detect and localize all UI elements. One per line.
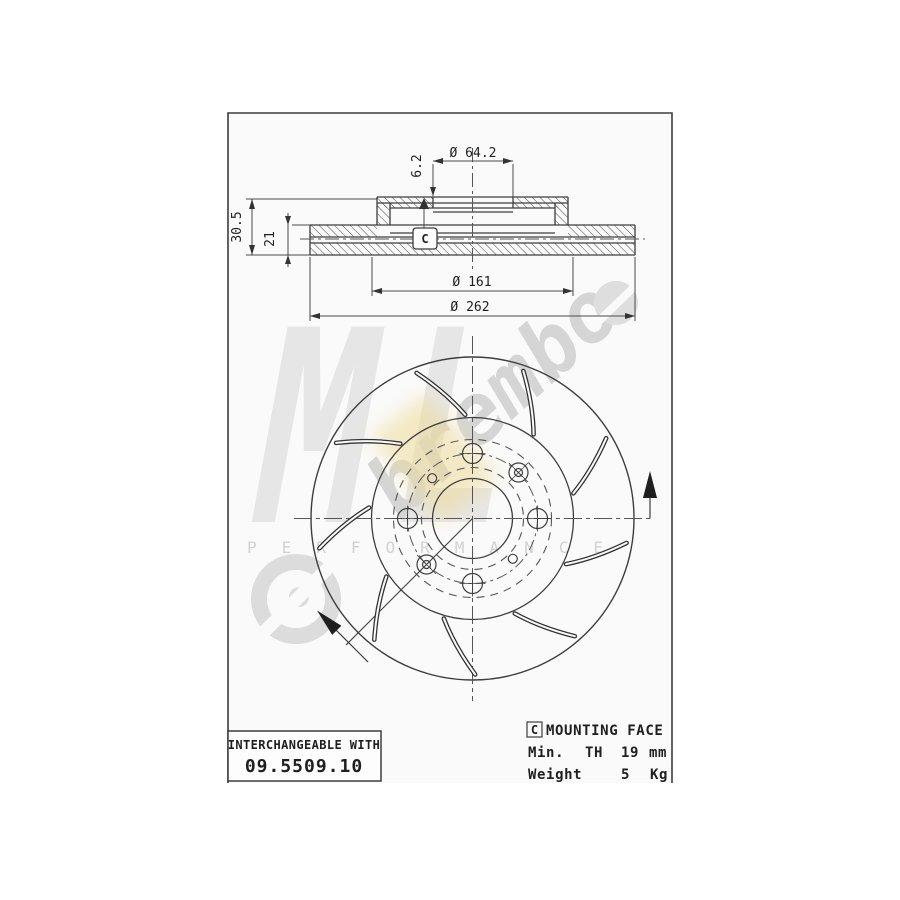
small-hole <box>428 474 437 483</box>
mounting-face-label: MOUNTING FACE <box>546 723 663 739</box>
weight-value: 5 <box>621 767 630 783</box>
interchangeable-label: INTERCHANGEABLE WITH <box>228 738 381 752</box>
dim-outer-text: Ø 262 <box>450 300 489 315</box>
interchangeable-box: INTERCHANGEABLE WITH 09.5509.10 <box>228 731 381 781</box>
drawing-linework: Ø 64.2 6.2 30.5 21 Ø 161 Ø 262 C <box>0 0 900 900</box>
rotation-arrow-right <box>643 471 657 519</box>
dim-offset-text: 6.2 <box>410 154 425 177</box>
small-hole <box>508 554 517 563</box>
dim-height-text: 30.5 <box>230 211 245 242</box>
interchangeable-part-number: 09.5509.10 <box>245 756 363 777</box>
weight-row: Weight 5 Kg <box>528 767 668 783</box>
drawing-frame <box>228 113 672 783</box>
front-view <box>294 336 657 701</box>
dim-inner-height-text: 21 <box>263 231 278 247</box>
rotation-arrow-left <box>317 611 368 663</box>
product-technical-drawing: ML brembo PERFORMANCE <box>0 0 900 900</box>
min-th-word1: Min. <box>528 745 564 761</box>
min-thickness-row: Min. TH 19 mm <box>528 745 667 761</box>
weight-unit: Kg <box>650 767 668 783</box>
weight-label: Weight <box>528 767 582 783</box>
min-th-value: 19 <box>621 745 639 761</box>
spec-block: C MOUNTING FACE Min. TH 19 mm Weight 5 K… <box>527 722 668 783</box>
mounting-face-marker-section: C <box>421 232 428 246</box>
section-view <box>300 148 645 270</box>
radius-line <box>346 519 473 646</box>
dim-contact-text: Ø 161 <box>452 275 491 290</box>
min-th-word2: TH <box>585 745 603 761</box>
min-th-unit: mm <box>649 745 667 761</box>
dim-hub-bore-text: Ø 64.2 <box>450 146 497 161</box>
mounting-face-marker: C <box>531 723 538 737</box>
